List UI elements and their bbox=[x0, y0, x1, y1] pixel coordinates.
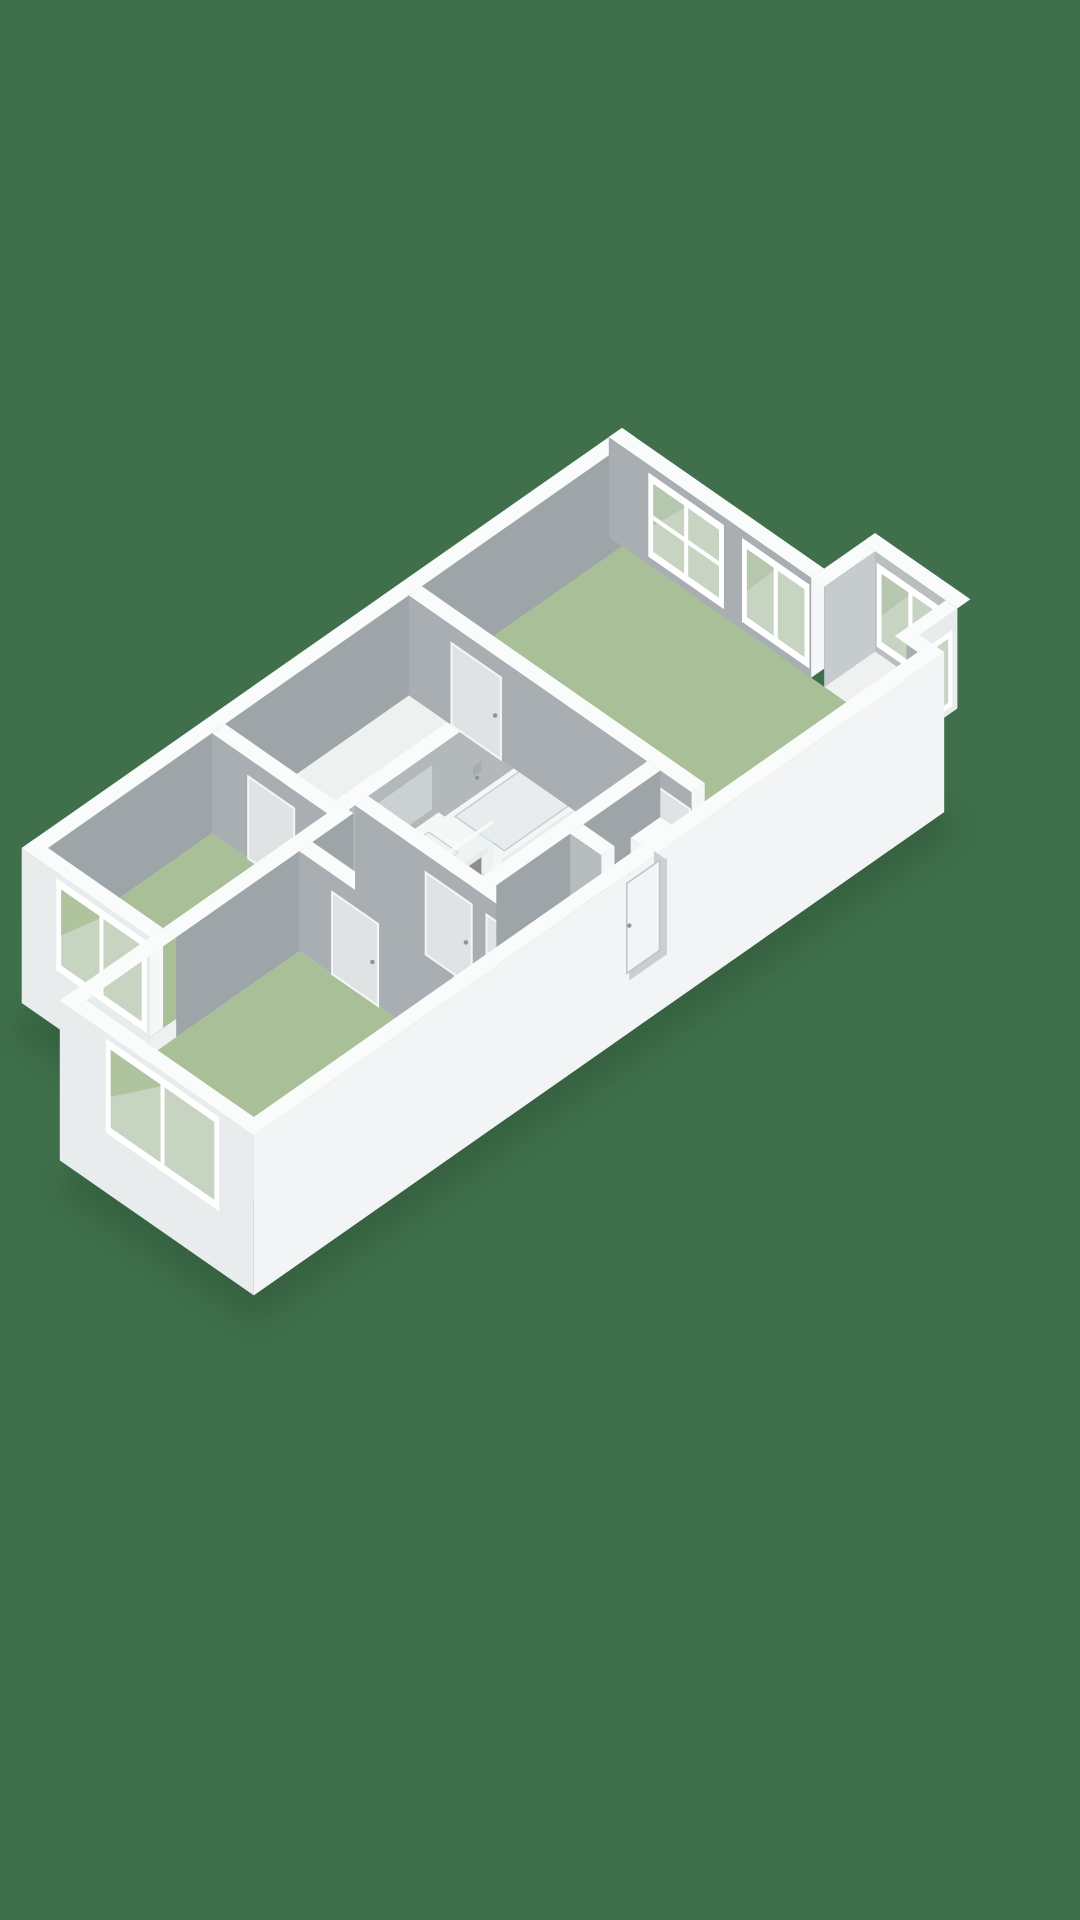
floorplan-canvas bbox=[0, 0, 1080, 1920]
floorplan-svg bbox=[0, 0, 1080, 1920]
